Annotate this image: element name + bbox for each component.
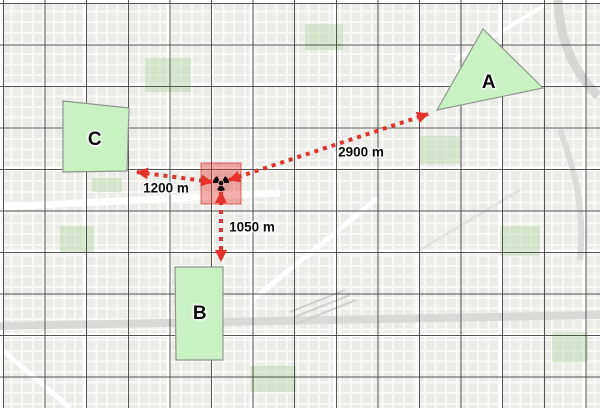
zone-a-polygon[interactable]: [437, 29, 543, 110]
measurement-line-a: [229, 114, 428, 180]
hazard-marker[interactable]: [201, 163, 241, 204]
analysis-overlay: [0, 0, 600, 408]
distance-label-b: 1050 m: [229, 220, 275, 235]
zone-b-label: B: [193, 303, 207, 325]
zone-a-label: A: [482, 72, 496, 94]
map-canvas[interactable]: A B C 2900 m 1050 m 1200 m: [0, 0, 600, 408]
distance-label-c: 1200 m: [143, 181, 189, 196]
distance-label-a: 2900 m: [338, 145, 384, 160]
zone-c-label: C: [88, 129, 102, 151]
